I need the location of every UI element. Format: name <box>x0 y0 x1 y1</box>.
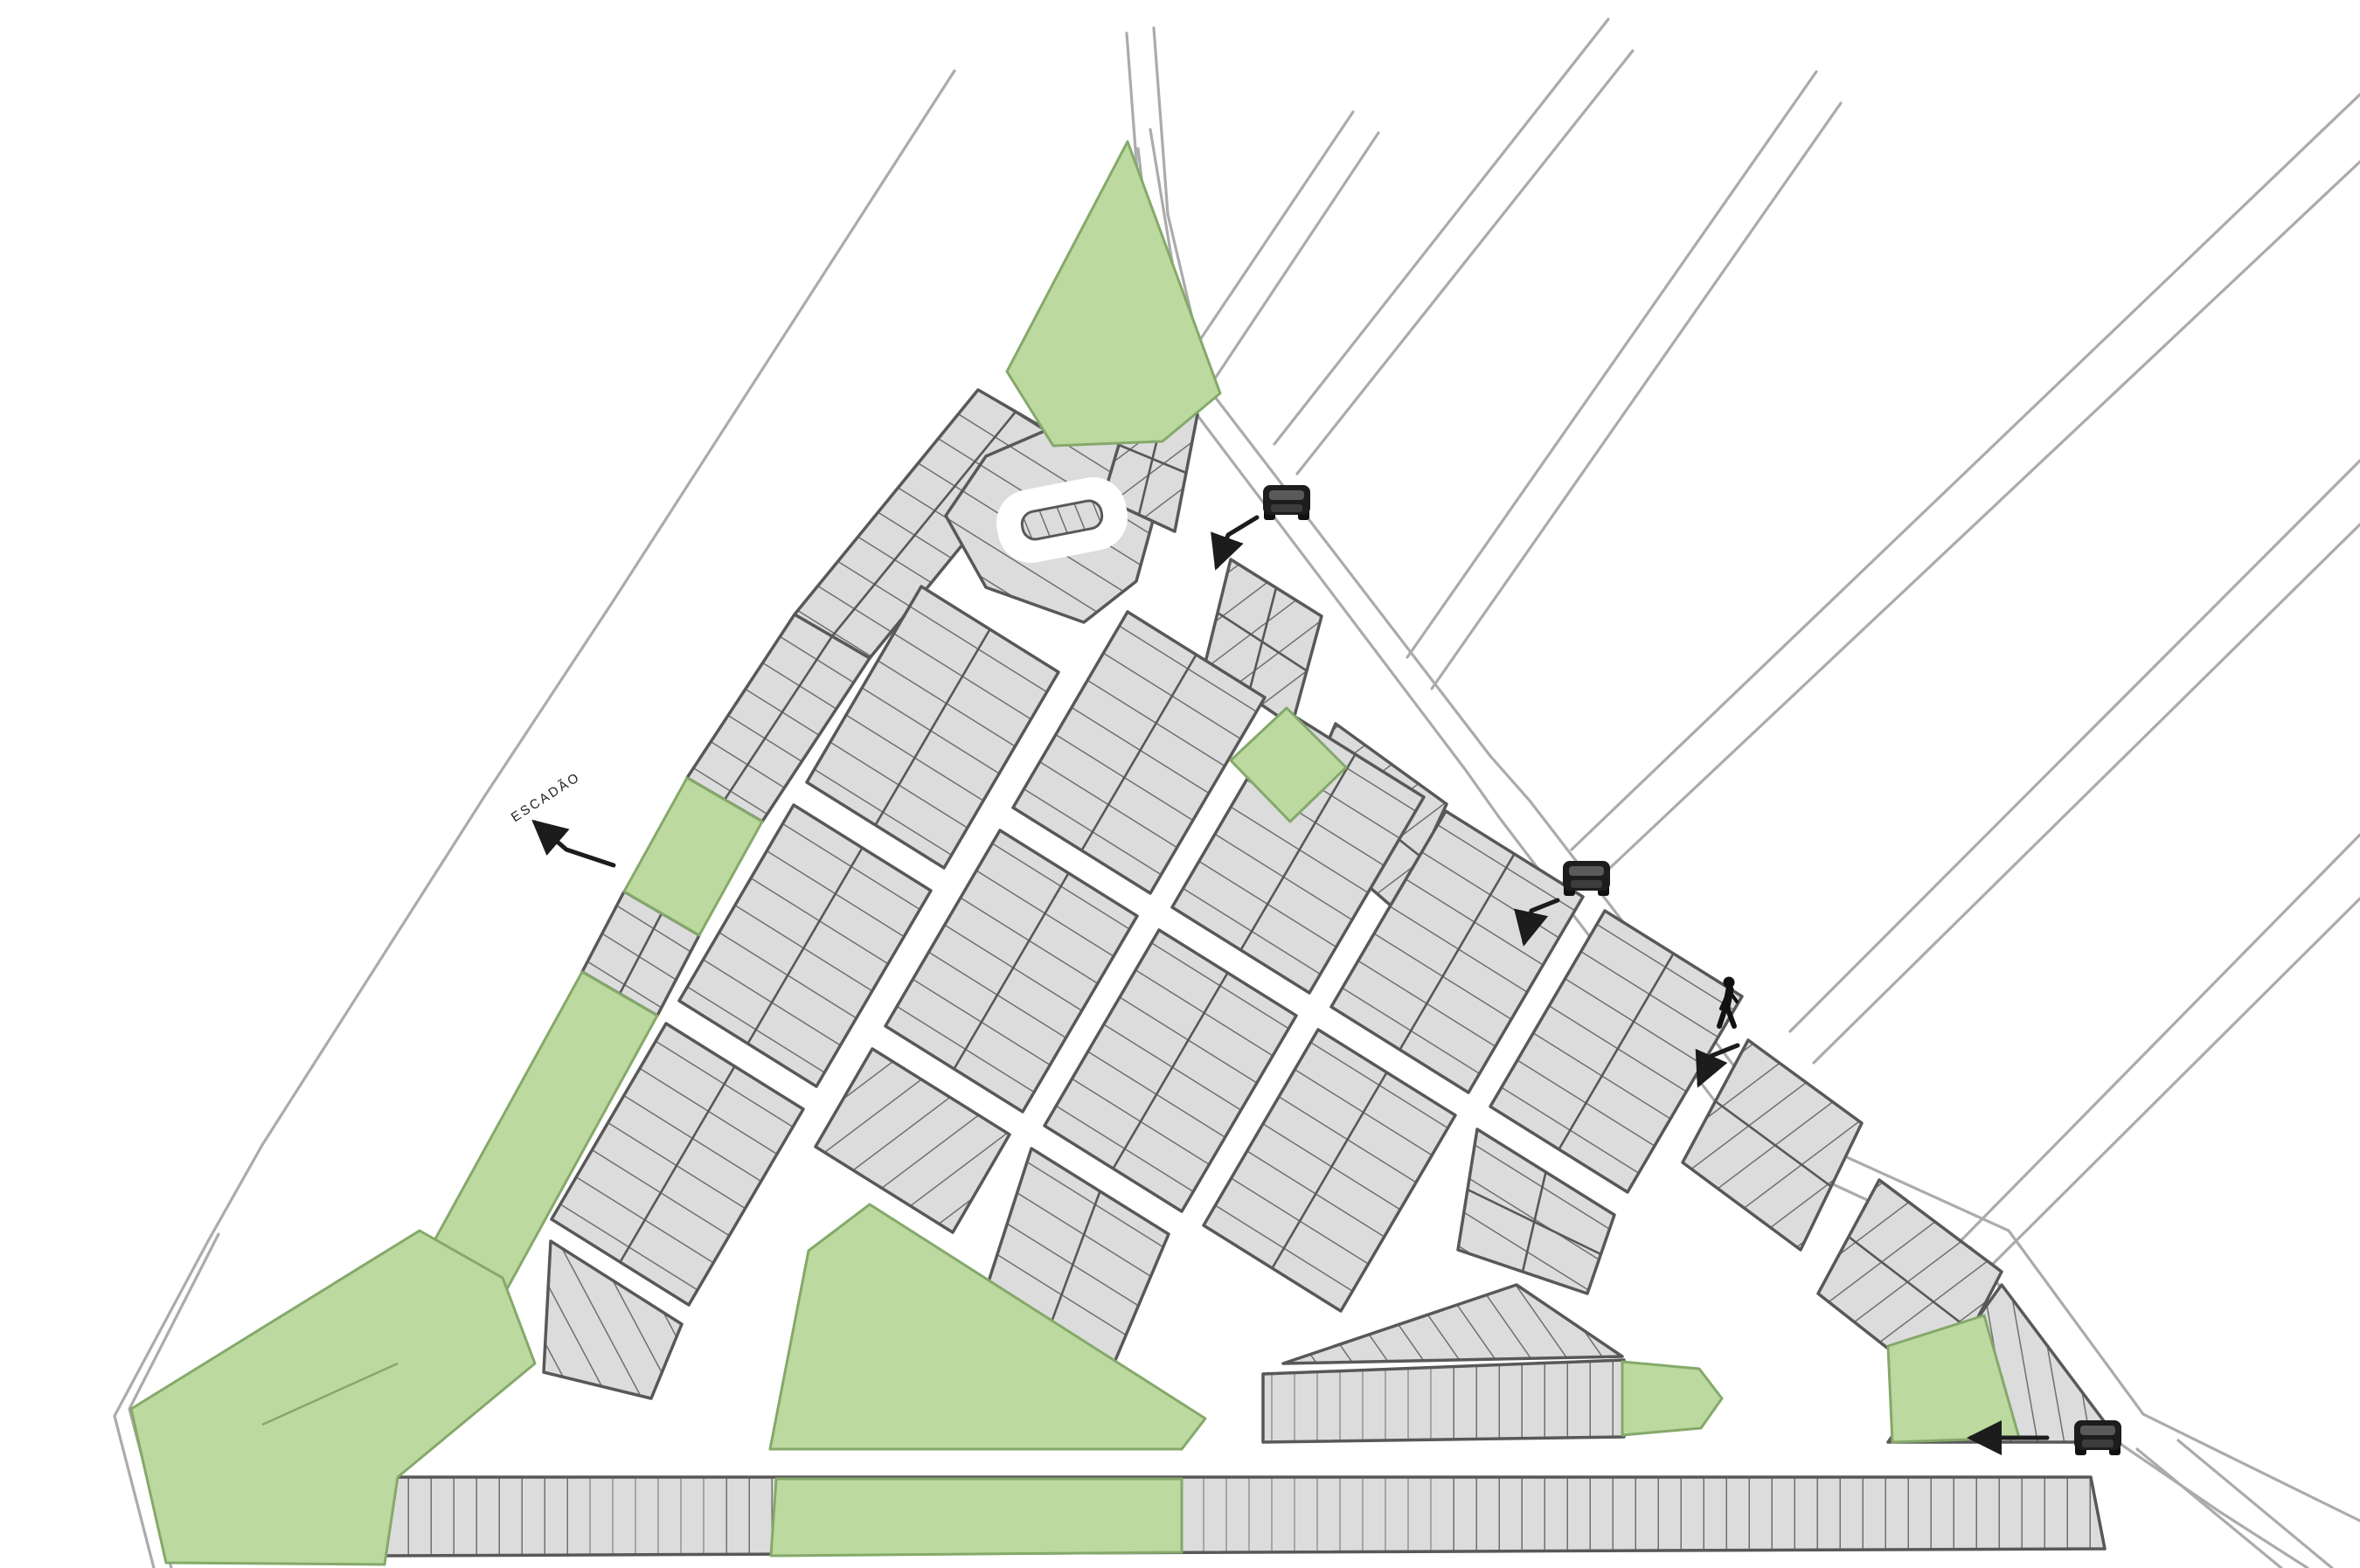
street-3b <box>1432 103 1841 689</box>
street-3a <box>1407 72 1816 657</box>
green-areas-layer <box>131 142 2019 1565</box>
street-6a <box>1954 835 2360 1248</box>
street-1b <box>1206 133 1378 392</box>
street-2a <box>1274 19 1608 444</box>
entrance-arrow-north <box>1217 517 1257 566</box>
block-h1 <box>1683 1040 1862 1250</box>
site-plan-map: ESCADÃO <box>0 0 2360 1568</box>
street-corner-b <box>2178 1440 2332 1568</box>
street-2b <box>1297 51 1633 474</box>
green-wedge-end <box>1622 1362 1722 1435</box>
escadao-label: ESCADÃO <box>509 769 583 825</box>
street-6b <box>1977 898 2360 1280</box>
street-4b <box>1596 162 2360 881</box>
car-icon <box>2074 1420 2121 1455</box>
block-bottom-strip <box>381 1477 2105 1556</box>
street-1a <box>1182 112 1353 367</box>
street-5b <box>1814 524 2360 1063</box>
site-plan-page: ESCADÃO <box>0 0 2360 1568</box>
block-wedge-strip <box>1263 1360 1624 1442</box>
lot-blocks-layer <box>381 390 2120 1556</box>
street-4a <box>1572 94 2360 850</box>
car-icon <box>1263 485 1310 520</box>
green-bottom-strip <box>771 1479 1182 1556</box>
green-apex-park <box>1007 142 1220 446</box>
car-icon <box>1563 861 1610 896</box>
street-5a <box>1790 461 2360 1031</box>
escadao-arrow <box>535 822 614 865</box>
